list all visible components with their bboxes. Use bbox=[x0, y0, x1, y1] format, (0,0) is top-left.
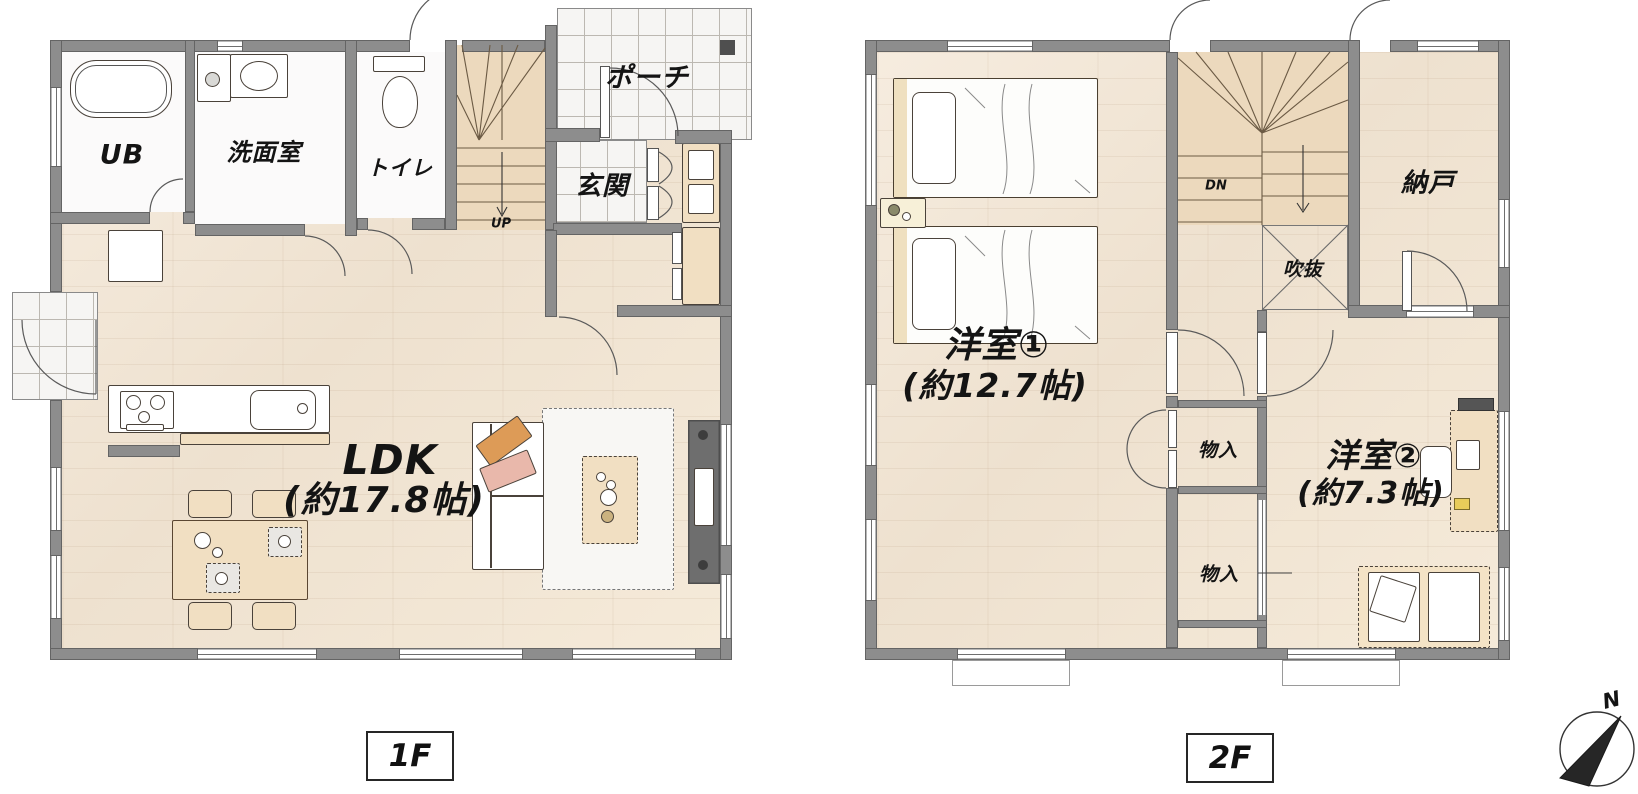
door-arc bbox=[305, 236, 345, 276]
room-area-ldk: (約17.8帖) bbox=[283, 471, 485, 523]
room-area-bedroom1: (約12.7帖) bbox=[902, 359, 1088, 407]
room-label-closet1: 物入 bbox=[1198, 436, 1238, 463]
room-label-porch: ポーチ bbox=[605, 56, 689, 95]
stair-treads bbox=[1262, 152, 1348, 196]
door-arc bbox=[1267, 330, 1333, 396]
room-label-toilet: トイレ bbox=[367, 152, 433, 182]
stairs-up-label: UP bbox=[491, 217, 511, 232]
door-arc bbox=[22, 320, 96, 394]
room-area-bedroom2: (約7.3帖) bbox=[1297, 468, 1445, 512]
room-label-ub: UB bbox=[100, 140, 145, 171]
room-label-void: 吹抜 bbox=[1283, 255, 1323, 282]
floor-badge-2f: 2F bbox=[1186, 733, 1274, 783]
door-arc bbox=[1127, 410, 1166, 488]
floorplan-page: UB 洗面室 トイレ ポーチ 玄関 LDK (約17.8帖) UP 洋室① (約… bbox=[0, 0, 1638, 794]
duvet-folds bbox=[1002, 84, 1034, 194]
stair-winders bbox=[1178, 52, 1348, 133]
door-arc bbox=[1170, 0, 1390, 40]
stairs-1f-lines bbox=[457, 45, 545, 220]
stairs-2f-lines bbox=[1178, 52, 1348, 225]
compass-needle bbox=[1560, 716, 1621, 786]
floor-badge-1f: 1F bbox=[366, 731, 454, 781]
door-arc bbox=[410, 0, 462, 40]
door-arc bbox=[150, 179, 183, 212]
stair-treads bbox=[457, 148, 545, 220]
door-arc bbox=[1407, 251, 1467, 311]
room-label-washroom: 洗面室 bbox=[227, 133, 302, 168]
door-arc bbox=[368, 230, 412, 274]
compass bbox=[1560, 712, 1634, 786]
bed-linen-lines bbox=[965, 84, 1090, 340]
door-arc bbox=[559, 317, 617, 375]
door-arcs bbox=[22, 0, 1467, 488]
duvet-creases bbox=[965, 88, 1090, 339]
room-label-closet2: 物入 bbox=[1199, 560, 1239, 587]
linework-overlay bbox=[0, 0, 1638, 794]
stair-direction-arrow bbox=[1297, 145, 1309, 212]
room-label-storeroom: 納戸 bbox=[1401, 163, 1455, 200]
stair-winders bbox=[457, 45, 545, 140]
door-arc bbox=[1178, 330, 1244, 396]
stairs-dn-label: DN bbox=[1205, 179, 1227, 194]
door-arc bbox=[659, 152, 672, 218]
room-label-entrance: 玄関 bbox=[575, 166, 629, 203]
